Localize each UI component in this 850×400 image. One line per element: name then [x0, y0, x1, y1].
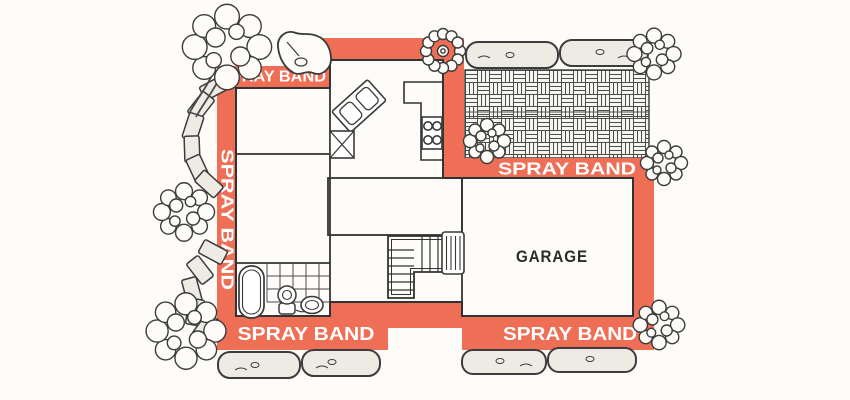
- stove: [422, 117, 442, 149]
- garage-label: GARAGE: [516, 247, 588, 266]
- louver-door: [442, 232, 464, 274]
- spray-band-label-bottom-left: SPRAY BAND: [238, 323, 375, 344]
- floor-plan-diagram: GARAGE SPRAY BAND SPRAY BAND SPRAY BAND …: [0, 0, 850, 400]
- spray-band-label-left: SPRAY BAND: [218, 149, 238, 290]
- dishwasher: [330, 131, 354, 158]
- bathtub: [239, 266, 264, 318]
- floor-plan-svg: GARAGE SPRAY BAND SPRAY BAND SPRAY BAND …: [0, 0, 850, 400]
- spray-band-label-bottom-right: SPRAY BAND: [503, 323, 637, 344]
- toilet: [278, 286, 296, 314]
- spray-band-label-right: SPRAY BAND: [498, 159, 636, 179]
